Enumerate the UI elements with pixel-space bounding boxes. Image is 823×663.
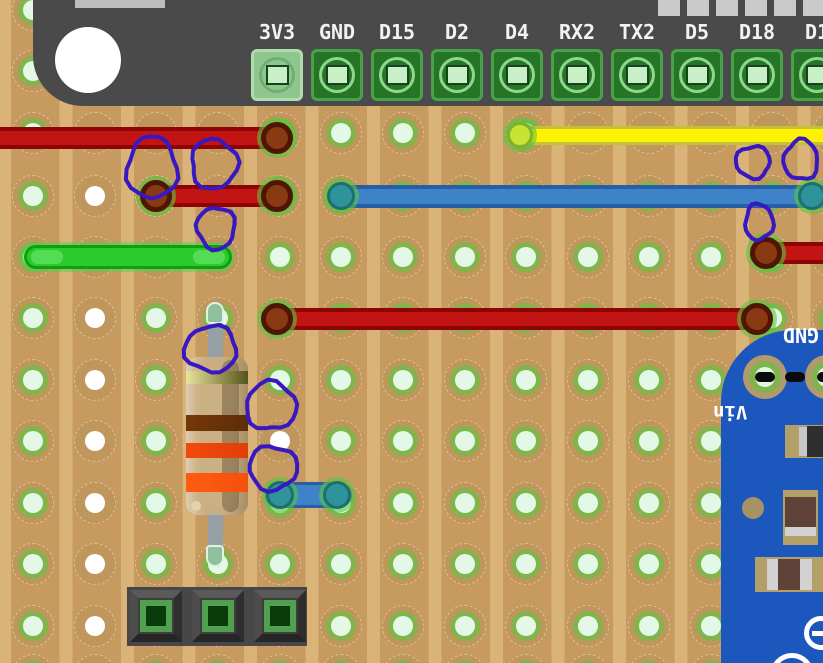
pcb-label-gnd: GND — [783, 323, 819, 347]
smd-component-3 — [755, 557, 823, 592]
pad-slot — [817, 372, 823, 382]
pin-pad-center — [506, 65, 529, 85]
wire-end-teal[interactable] — [266, 481, 294, 509]
minus-line — [812, 631, 823, 636]
pcb-via — [742, 497, 764, 519]
wire-end-red[interactable] — [140, 180, 172, 212]
pin-pad-ring — [259, 57, 295, 93]
breadboard-canvas: 3V3GNDD15D2D4RX2TX2D5D18D1 GND Vin — [0, 0, 823, 663]
pin-pad-center — [626, 65, 649, 85]
board-tab — [716, 0, 738, 16]
pin-pad-center — [326, 65, 349, 85]
pin-pad-D4[interactable] — [491, 49, 543, 101]
smd-terminal — [767, 559, 778, 590]
pin-pad-RX2[interactable] — [551, 49, 603, 101]
red-wire-row1[interactable] — [0, 127, 272, 149]
pin-pad-ring — [559, 57, 595, 93]
pin-pad-D18[interactable] — [731, 49, 783, 101]
pin-label-D18: D18 — [739, 21, 775, 43]
resistor-lead-bottom-cap — [206, 545, 224, 567]
red-wire-row2[interactable] — [156, 185, 277, 207]
wire-end-teal[interactable] — [798, 182, 823, 210]
smd-component-2 — [783, 490, 818, 545]
mcu-board-edge[interactable]: 3V3GNDD15D2D4RX2TX2D5D18D1 — [33, 0, 823, 106]
wire-end-red[interactable] — [750, 237, 782, 269]
socket-contact — [264, 600, 296, 632]
smd-body — [778, 559, 800, 590]
socket-contact — [202, 600, 234, 632]
header-socket[interactable] — [130, 590, 182, 642]
board-silkscreen-bar — [75, 0, 165, 8]
wire-end-red[interactable] — [741, 303, 773, 335]
board-tab — [803, 0, 823, 16]
pin-pad-D15[interactable] — [371, 49, 423, 101]
pin-pad-center — [266, 65, 289, 85]
pin-label-D15: D15 — [379, 21, 415, 43]
blue-wire-row2[interactable] — [332, 185, 823, 208]
wire-end-cap — [193, 250, 225, 264]
socket-contact — [140, 600, 172, 632]
pin-pad-ring — [739, 57, 775, 93]
pin-pad-3V3[interactable] — [251, 49, 303, 101]
smd-terminal — [800, 559, 812, 590]
pin-label-GND: GND — [319, 21, 355, 43]
resistor-band-brown — [186, 415, 248, 431]
silkscreen-circle-icon — [770, 653, 814, 663]
red-wire-row4[interactable] — [277, 308, 757, 330]
pin-pad-D1[interactable] — [791, 49, 823, 101]
resistor-highlight-dot — [191, 501, 201, 511]
mounting-hole — [55, 27, 121, 93]
board-tab — [745, 0, 767, 16]
pin-pad-D5[interactable] — [671, 49, 723, 101]
wire-end-red[interactable] — [261, 180, 293, 212]
yellow-wire-row1[interactable] — [520, 126, 823, 145]
pin-pad-GND[interactable] — [311, 49, 363, 101]
wire-end-yellow[interactable] — [507, 122, 533, 148]
board-tab — [774, 0, 796, 16]
pcb-label-vin: Vin — [713, 401, 747, 423]
pin-pad-ring — [619, 57, 655, 93]
pin-pad-ring — [679, 57, 715, 93]
pin-pad-center — [566, 65, 589, 85]
resistor-band-orange-2 — [186, 473, 248, 492]
pin-pad-ring — [379, 57, 415, 93]
pad-slot-dash — [785, 372, 805, 382]
pin-pad-ring — [799, 57, 823, 93]
wire-end-red[interactable] — [261, 122, 293, 154]
polarity-symbol-icon — [804, 616, 823, 650]
pin-pad-ring — [499, 57, 535, 93]
pin-pad-ring — [439, 57, 475, 93]
wire-end-red[interactable] — [261, 303, 293, 335]
pin-pad-center — [686, 65, 709, 85]
pin-label-D1: D1 — [805, 21, 823, 43]
pin-pad-TX2[interactable] — [611, 49, 663, 101]
header-socket[interactable] — [192, 590, 244, 642]
pin-header-3x1[interactable] — [127, 587, 307, 646]
pin-label-D4: D4 — [505, 21, 529, 43]
resistor-lead-top-cap — [206, 302, 224, 324]
pin-pad-center — [386, 65, 409, 85]
power-module-pcb[interactable]: GND Vin — [721, 330, 823, 663]
pin-pad-center — [746, 65, 769, 85]
pin-label-D5: D5 — [685, 21, 709, 43]
pin-label-RX2: RX2 — [559, 21, 595, 43]
wire-end-teal[interactable] — [323, 481, 351, 509]
board-tab — [687, 0, 709, 16]
header-socket[interactable] — [254, 590, 306, 642]
resistor-band-gold — [186, 371, 248, 384]
pin-pad-D2[interactable] — [431, 49, 483, 101]
pin-pad-ring — [319, 57, 355, 93]
smd-body — [785, 497, 816, 527]
pin-label-TX2: TX2 — [619, 21, 655, 43]
resistor-band-orange-1 — [186, 443, 248, 458]
smd-terminal — [785, 527, 816, 536]
wire-end-teal[interactable] — [327, 182, 355, 210]
smd-terminal — [799, 427, 807, 456]
board-tab — [658, 0, 680, 16]
pin-label-D2: D2 — [445, 21, 469, 43]
green-jumper-wire[interactable] — [24, 245, 232, 269]
smd-body — [807, 426, 823, 457]
pin-label-3V3: 3V3 — [259, 21, 295, 43]
smd-component-1 — [785, 425, 823, 458]
pin-pad-center — [446, 65, 469, 85]
pin-pad-center — [806, 65, 823, 85]
pad-slot — [755, 372, 775, 382]
wire-end-cap — [31, 250, 63, 264]
